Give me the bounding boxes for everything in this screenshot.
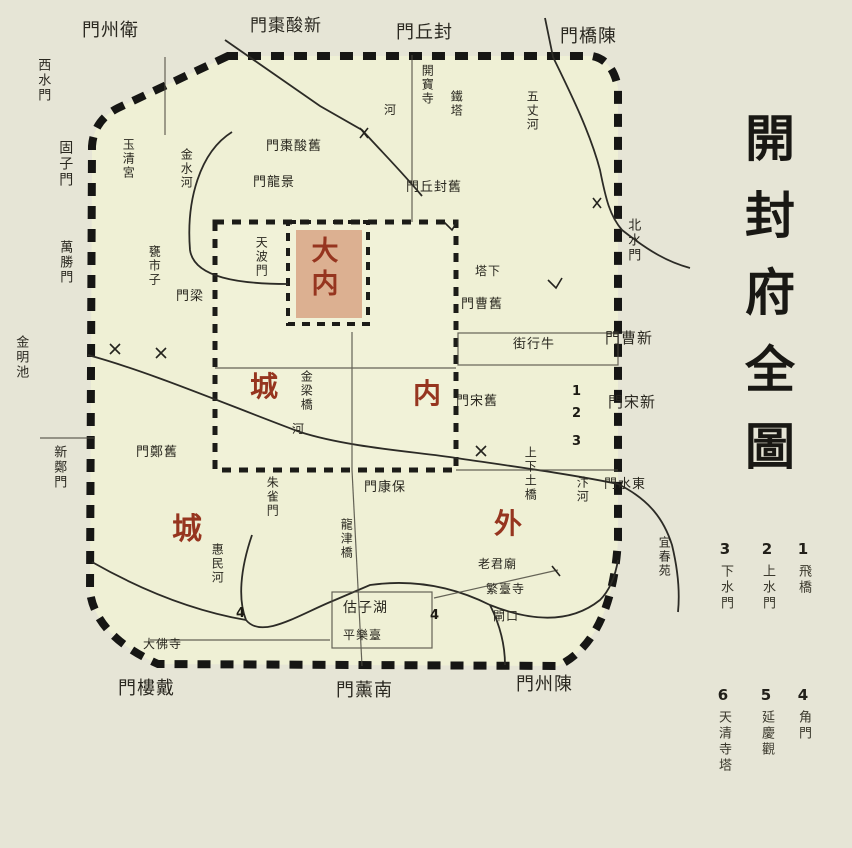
inner-city-label-cheng: 城 (250, 373, 279, 402)
place-label-laojunmiao: 老君廟 (478, 558, 517, 570)
street-label-niuhang: 街行牛 (513, 338, 555, 351)
legend-label-3: 下水門 (718, 564, 733, 612)
place-label-tieta: 鐵塔 (450, 90, 462, 118)
outer-city-label-cheng: 城 (172, 515, 203, 546)
bridge-label-shangxiatu: 上下土橋 (524, 446, 536, 502)
place-label-pingletai: 平樂臺 (343, 629, 382, 641)
map-marker-4a: 4 (236, 606, 245, 621)
gate-label-xinzheng: 新鄭門 (52, 445, 65, 490)
place-label-dafosi: 大佛寺 (143, 638, 182, 650)
map-marker-3: 3 (572, 434, 581, 449)
gate-label-xishui: 西水門 (36, 58, 49, 103)
legend-num-1: 1 (794, 540, 812, 564)
gate-label-jiucao: 門曹舊 (461, 298, 503, 311)
legend-label-6: 天清寺塔 (716, 710, 731, 774)
gate-label-dongshui: 門水東 (604, 478, 646, 491)
legend-num-5: 5 (757, 686, 775, 710)
place-label-zhakou: 閘口 (493, 610, 519, 622)
gate-label-xinsong: 門宋新 (608, 395, 656, 410)
gate-label-dailou: 門樓戴 (118, 680, 175, 698)
place-label-yichunyuan: 宜春苑 (658, 536, 670, 578)
map-marker-1: 1 (572, 384, 581, 399)
bridge-label-longjin: 龍津橋 (340, 518, 352, 560)
gate-label-jiufengqiu: 門丘封舊 (406, 181, 462, 194)
legend-item-1: 1飛橋 (794, 540, 813, 596)
gate-label-nanxun: 門薰南 (336, 682, 393, 700)
palace-label: 大内 (308, 236, 336, 302)
gate-label-wansheng: 萬勝門 (58, 240, 71, 285)
legend-label-2: 上水門 (760, 564, 775, 612)
river-label-he-2: 河 (384, 104, 397, 116)
place-label-kaibaosi: 開寶寺 (421, 64, 433, 106)
gate-label-xincao: 門曹新 (605, 331, 653, 346)
gate-label-tianbo: 天波門 (255, 236, 267, 278)
legend-label-4: 角門 (796, 710, 811, 742)
gate-label-fengqiu: 門丘封 (396, 24, 453, 42)
legend-item-3: 3下水門 (716, 540, 735, 612)
legend-item-2: 2上水門 (758, 540, 777, 612)
place-label-yuqinggong: 玉清宮 (122, 138, 134, 180)
legend-num-2: 2 (758, 540, 776, 564)
legend-num-4: 4 (794, 686, 812, 710)
gate-label-beishui: 北水門 (626, 218, 639, 263)
legend-item-6: 6天清寺塔 (714, 686, 733, 774)
gate-label-zhuque: 朱雀門 (266, 476, 278, 518)
place-label-jinmingchi: 金明池 (14, 335, 27, 380)
legend-label-5: 延慶觀 (759, 710, 774, 758)
legend-label-1: 飛橋 (796, 564, 811, 596)
map-marker-2: 2 (572, 406, 581, 421)
river-label-wuzhang: 五丈河 (526, 90, 538, 132)
legend-num-3: 3 (716, 540, 734, 564)
bridge-label-jinliang: 金梁橋 (300, 370, 312, 412)
legend-item-4: 4角門 (794, 686, 813, 742)
river-label-he-1: 河 (292, 423, 305, 435)
map-title: 開封府全圖 (730, 112, 802, 497)
map-page: 大内 内 城 外 城 門州衛 門棗酸新 門丘封 門橋陳 門樓戴 門薰南 門州陳 … (0, 0, 852, 848)
place-label-lake: 估子湖 (343, 601, 388, 615)
gate-label-jiusong: 門宋舊 (456, 395, 498, 408)
river-label-huimin: 惠民河 (211, 543, 223, 585)
map-marker-4b: 4 (430, 608, 439, 623)
inner-city-label-nei: 内 (413, 380, 442, 409)
gate-label-weizhou: 門州衛 (82, 22, 139, 40)
gate-label-chenqiao: 門橋陳 (560, 28, 617, 46)
gate-label-liang: 門梁 (176, 290, 204, 303)
gate-label-jinglong: 門龍景 (253, 176, 295, 189)
gate-label-chenzhou: 門州陳 (516, 676, 573, 694)
place-label-fantaisi: 繁臺寺 (486, 583, 525, 595)
legend-num-6: 6 (714, 686, 732, 710)
gate-label-baokang: 門康保 (364, 481, 406, 494)
gate-label-jiuzheng: 門鄭舊 (136, 446, 178, 459)
place-label-wengshizi: 甕市子 (148, 245, 160, 287)
outer-city-label-wai: 外 (494, 510, 523, 539)
gate-label-guzi: 固子門 (58, 140, 72, 188)
gate-label-xinsuanzao: 門棗酸新 (250, 18, 322, 35)
legend-item-5: 5延慶觀 (757, 686, 776, 758)
river-label-jinshui: 金水河 (180, 148, 192, 190)
gate-label-jiusuanzao: 門棗酸舊 (266, 140, 322, 153)
river-label-bian: 汴河 (576, 476, 588, 504)
place-label-taxia: 塔下 (475, 265, 501, 277)
